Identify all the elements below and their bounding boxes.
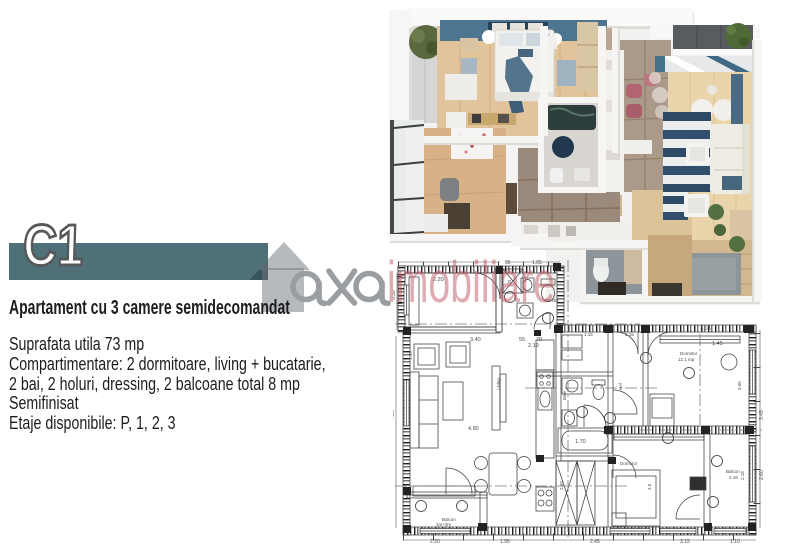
svg-text:1.45: 1.45: [712, 341, 723, 347]
svg-text:1.35: 1.35: [408, 351, 413, 360]
svg-text:Baie: Baie: [562, 390, 567, 400]
svg-text:3.5: 3.5: [647, 483, 652, 490]
svg-text:55: 55: [519, 337, 525, 343]
svg-text:1m+3m: 1m+3m: [436, 522, 451, 527]
svg-text:3.05: 3.05: [737, 381, 742, 390]
svg-text:3.40: 3.40: [470, 337, 481, 343]
svg-text:imobiliare: imobiliare: [387, 250, 555, 315]
svg-text:Hol: Hol: [618, 383, 623, 390]
svg-text:Dormitor: Dormitor: [680, 351, 698, 356]
svg-text:4.25: 4.25: [393, 410, 396, 420]
svg-text:2.18: 2.18: [729, 475, 738, 480]
svg-text:1.15: 1.15: [584, 332, 593, 337]
svg-text:1.70: 1.70: [575, 439, 586, 445]
svg-text:2.58: 2.58: [559, 481, 564, 490]
svg-text:2.19: 2.19: [528, 343, 539, 349]
svg-text:3.08: 3.08: [700, 326, 711, 332]
svg-text:Balcon: Balcon: [726, 469, 740, 474]
svg-text:Dormitor: Dormitor: [620, 461, 638, 466]
svg-text:12.1 mp: 12.1 mp: [678, 357, 695, 362]
svg-text:Living: Living: [496, 378, 501, 390]
svg-text:2.18: 2.18: [740, 471, 745, 480]
svg-text:4.80: 4.80: [468, 426, 479, 432]
svg-text:2.15: 2.15: [625, 332, 634, 337]
